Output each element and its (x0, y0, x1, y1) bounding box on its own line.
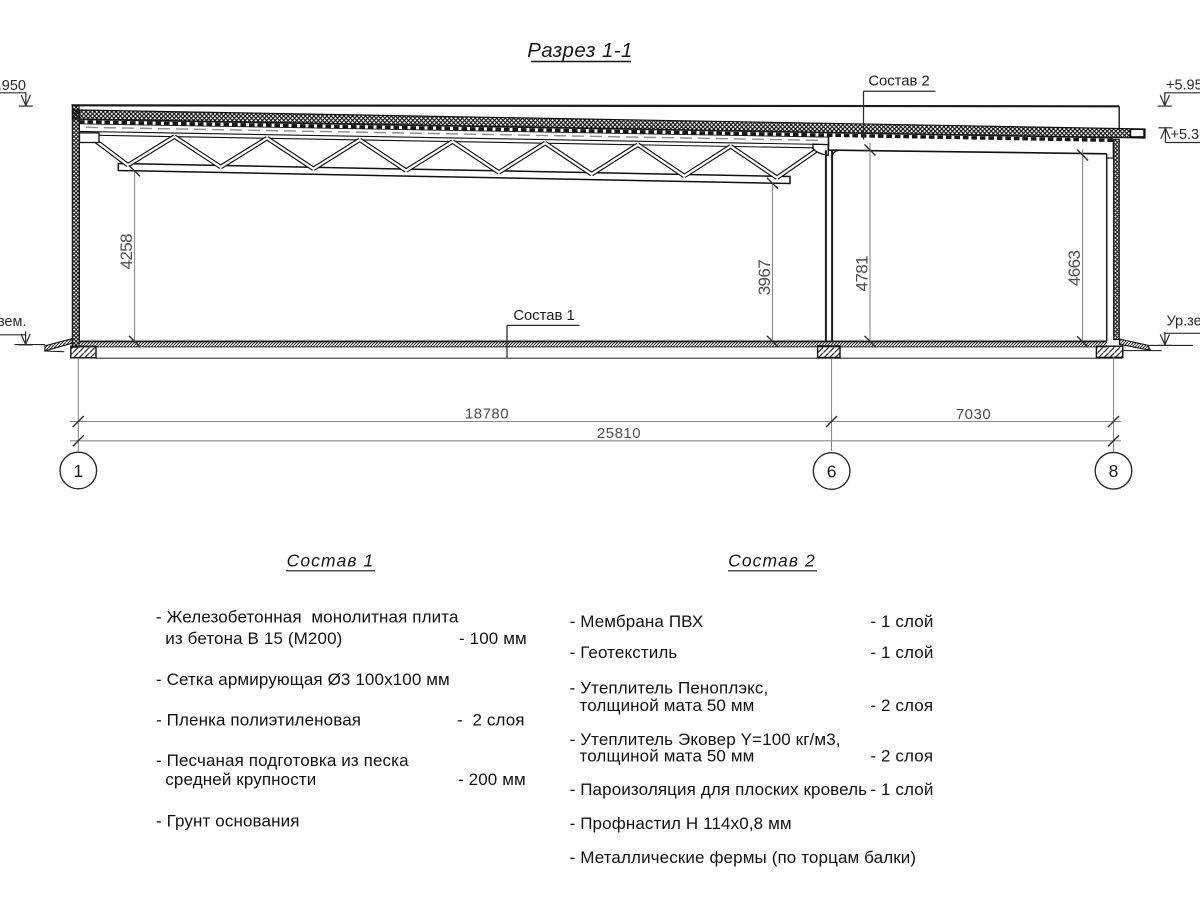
svg-text:+5.385: +5.385 (1171, 127, 1200, 143)
svg-text:Состав 2: Состав 2 (868, 74, 929, 90)
svg-text:8: 8 (1109, 461, 1119, 481)
svg-text:- Железобетонная монолитная п: - Железобетонная монолитная плита (156, 607, 459, 626)
svg-text:4781: 4781 (852, 256, 871, 292)
svg-text:средней крупности: средней крупности (165, 770, 316, 789)
svg-text:- 200 мм: - 200 мм (458, 770, 526, 789)
svg-text:- Пленка полиэтиленовая: - Пленка полиэтиленовая (156, 710, 361, 729)
svg-text:4663: 4663 (1065, 251, 1084, 287)
svg-text:- 100 мм: - 100 мм (459, 629, 527, 648)
svg-text:3967: 3967 (755, 260, 774, 296)
svg-text:1: 1 (73, 461, 83, 481)
svg-text:7030: 7030 (956, 406, 991, 423)
svg-text:- 2 слоя: - 2 слоя (870, 747, 933, 766)
svg-text:4258: 4258 (117, 234, 136, 270)
svg-text:Ур.зем.: Ур.зем. (1167, 313, 1200, 329)
svg-text:18780: 18780 (465, 406, 509, 423)
svg-text:толщиной мата 50 мм: толщиной мата 50 мм (580, 696, 755, 715)
svg-text:6: 6 (827, 461, 837, 481)
svg-text:толщиной мата 50 мм: толщиной мата 50 мм (580, 747, 755, 766)
svg-text:Состав 1: Состав 1 (513, 308, 574, 324)
svg-text:- Утеплитель Пеноплэкс,: - Утеплитель Пеноплэкс, (570, 678, 769, 697)
svg-text:- 2 слоя: - 2 слоя (457, 710, 525, 729)
svg-text:Состав 1: Состав 1 (287, 551, 375, 571)
svg-text:25810: 25810 (597, 425, 641, 442)
svg-text:- Геотекстиль: - Геотекстиль (570, 643, 678, 662)
svg-text:- 2 слоя: - 2 слоя (870, 696, 933, 715)
svg-text:Состав 2: Состав 2 (728, 551, 816, 571)
svg-text:- Песчаная подготовка из песка: - Песчаная подготовка из песка (156, 751, 409, 770)
svg-text:из бетона В 15 (М200): из бетона В 15 (М200) (165, 629, 342, 648)
svg-text:- Сетка армирующая Ø3 100х100: - Сетка армирующая Ø3 100х100 мм (156, 670, 450, 689)
svg-text:- 1 слой: - 1 слой (870, 643, 933, 662)
svg-text:Разрез 1-1: Разрез 1-1 (527, 39, 633, 62)
svg-text:- Мембрана ПВХ: - Мембрана ПВХ (570, 612, 704, 631)
svg-text:- Металлические фермы (по торц: - Металлические фермы (по торцам балки) (570, 848, 917, 867)
svg-text:+5.950: +5.950 (0, 78, 26, 94)
svg-text:- 1 слой: - 1 слой (870, 780, 933, 799)
svg-text:+5.950: +5.950 (1166, 78, 1200, 94)
svg-text:- Пароизоляция для плоских кро: - Пароизоляция для плоских кровель (570, 780, 868, 799)
svg-text:- Профнастил Н 114х0,8 мм: - Профнастил Н 114х0,8 мм (570, 814, 792, 833)
svg-text:Ур.зем.: Ур.зем. (0, 314, 27, 330)
svg-text:- Грунт основания: - Грунт основания (156, 811, 300, 830)
svg-text:- 1 слой: - 1 слой (870, 612, 933, 631)
